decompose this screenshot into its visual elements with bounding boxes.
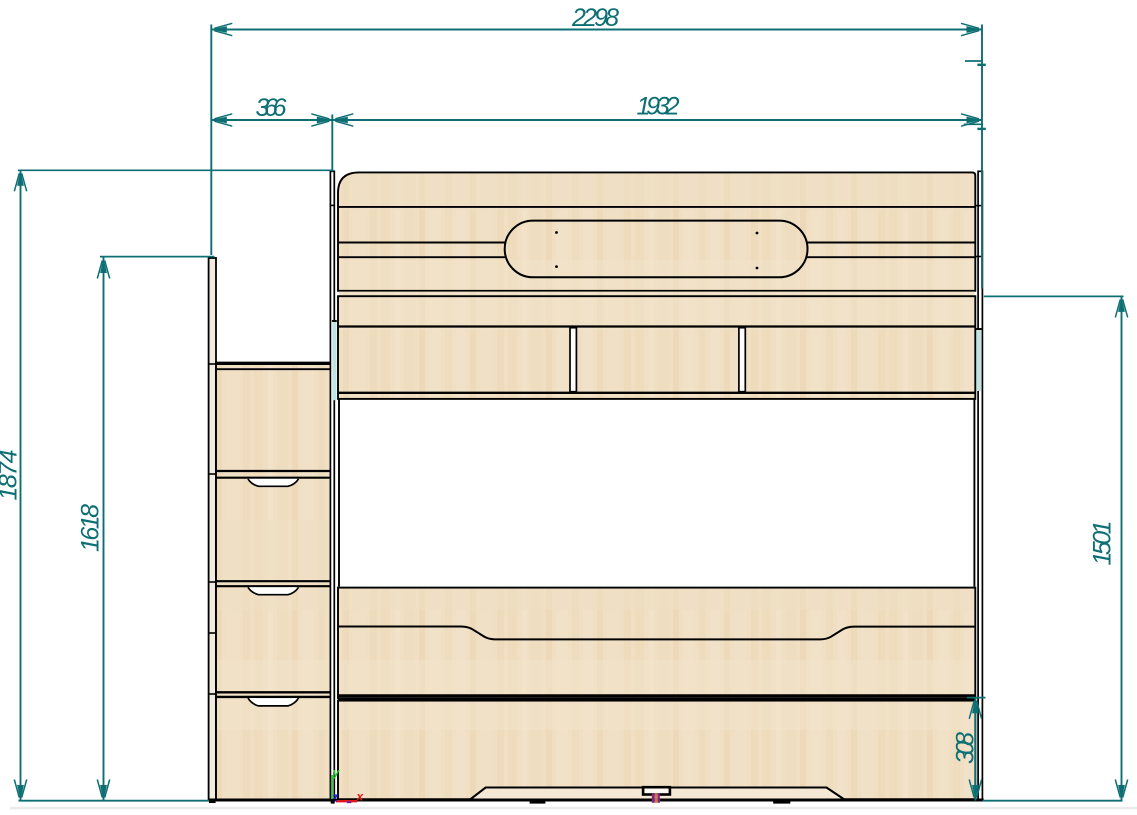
svg-text:x: x <box>356 790 365 804</box>
svg-text:1932: 1932 <box>637 93 680 121</box>
svg-text:y: y <box>332 766 341 780</box>
svg-text:1874: 1874 <box>0 450 23 501</box>
svg-text:308: 308 <box>952 732 980 764</box>
svg-text:1501: 1501 <box>1089 521 1117 566</box>
svg-text:366: 366 <box>256 94 287 122</box>
svg-text:1618: 1618 <box>77 504 105 552</box>
svg-text:2298: 2298 <box>571 4 619 32</box>
